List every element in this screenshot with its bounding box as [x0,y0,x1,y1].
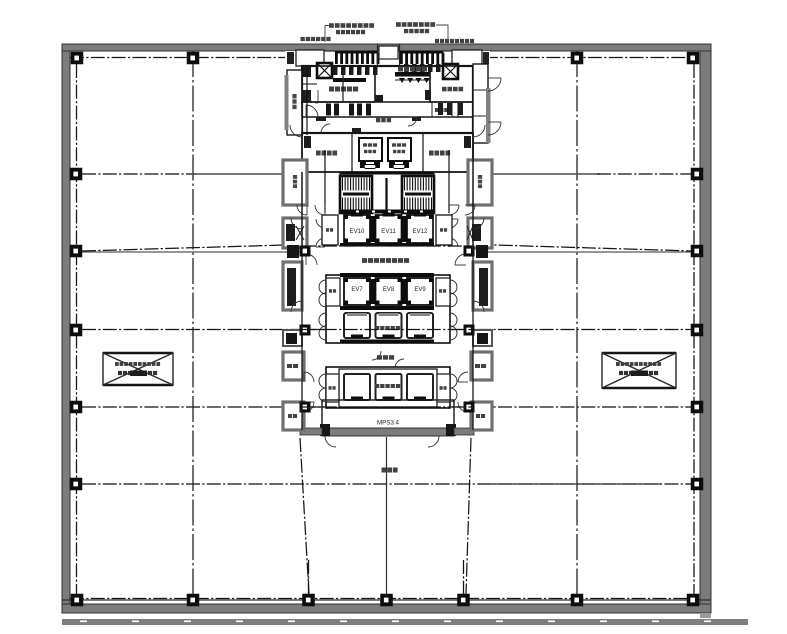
svg-text:EV10: EV10 [350,228,366,235]
svg-text:EV11: EV11 [381,228,396,235]
svg-text:EV12: EV12 [413,228,429,235]
svg-text:EV7: EV7 [351,287,363,293]
svg-text:EV8: EV8 [383,287,395,293]
svg-text:MPS3.4: MPS3.4 [377,420,400,427]
svg-text:EV9: EV9 [414,287,426,293]
